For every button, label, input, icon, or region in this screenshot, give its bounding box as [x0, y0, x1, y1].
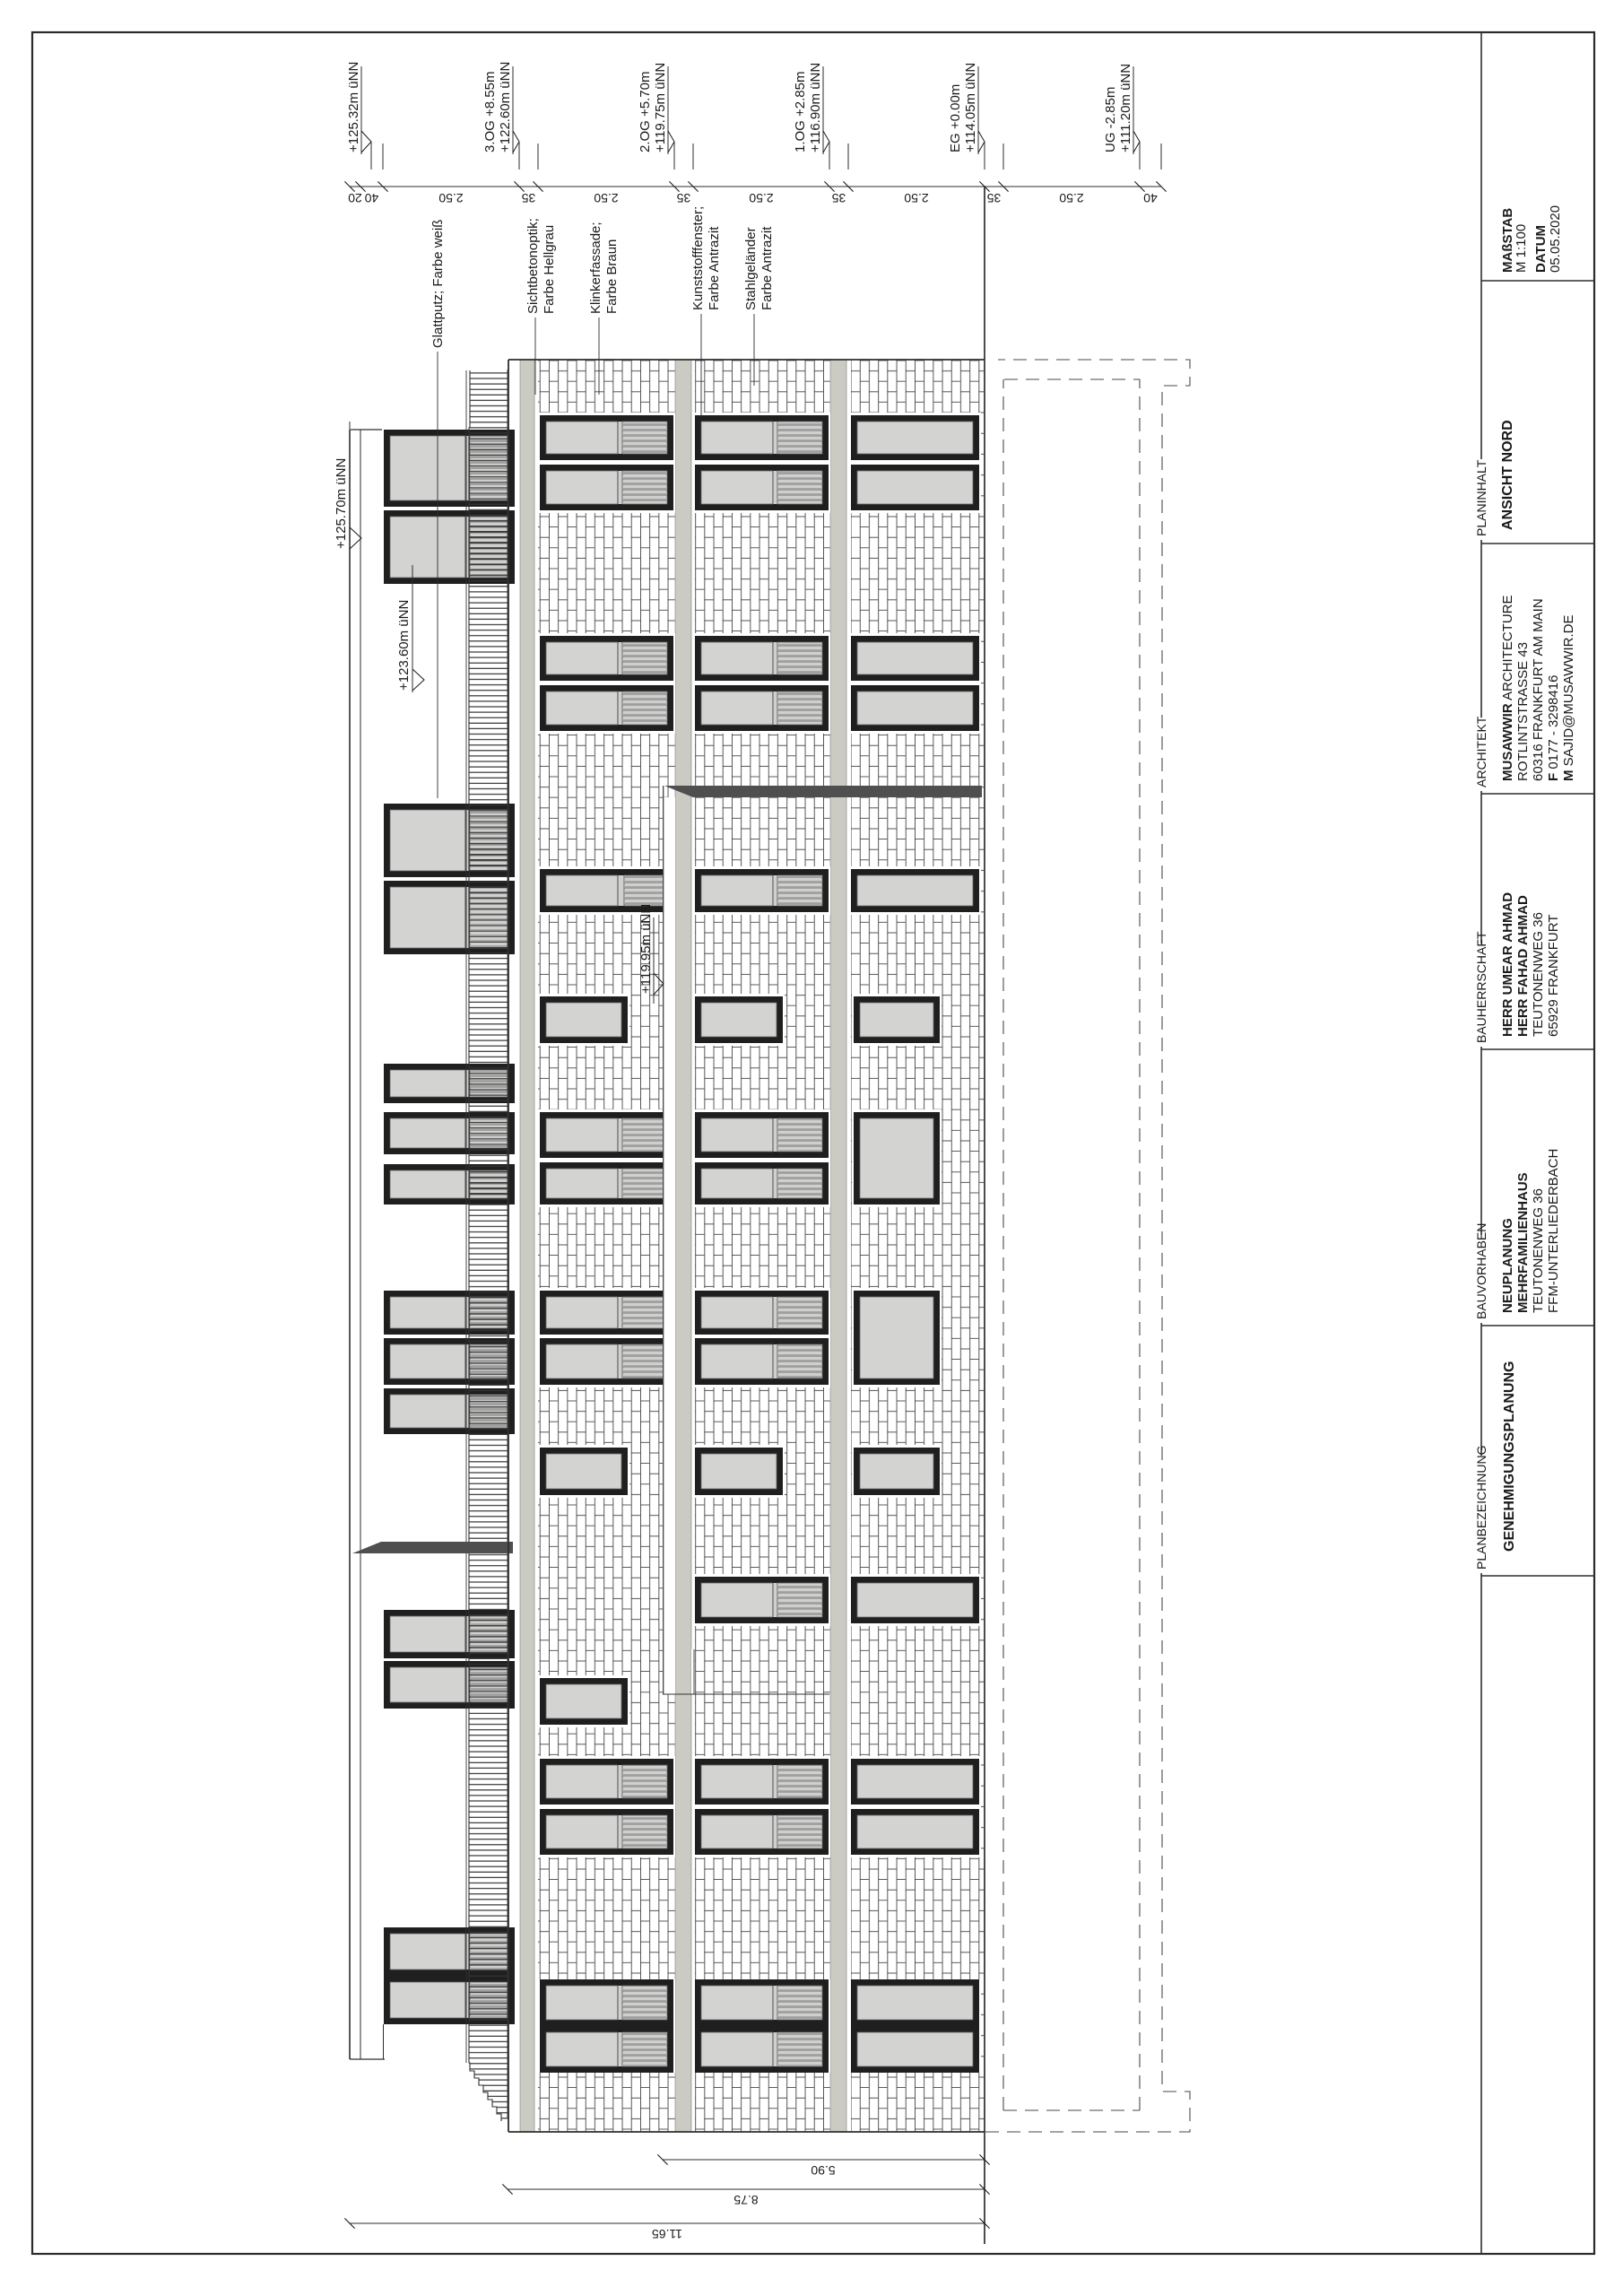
svg-text:HERR FAHAD AHMAD: HERR FAHAD AHMAD [1515, 895, 1531, 1037]
svg-text:Farbe Antrazit: Farbe Antrazit [759, 226, 775, 310]
svg-text:EG +0.00m: EG +0.00m [948, 84, 963, 152]
svg-text:+114.05m üNN: +114.05m üNN [963, 63, 978, 152]
svg-text:DATUM: DATUM [1533, 225, 1549, 273]
svg-text:Farbe Antrazit: Farbe Antrazit [707, 226, 722, 310]
svg-text:MUSAWWIR ARCHITECTURE: MUSAWWIR ARCHITECTURE [1500, 596, 1515, 782]
svg-text:Farbe Braun: Farbe Braun [604, 239, 620, 314]
svg-text:Klinkerfassade;: Klinkerfassade; [588, 222, 603, 314]
svg-text:M SAJID@MUSAWWIR.DE: M SAJID@MUSAWWIR.DE [1561, 614, 1576, 781]
svg-text:40: 40 [365, 191, 379, 205]
svg-text:+125.70m üNN: +125.70m üNN [334, 458, 349, 549]
svg-text:ANSICHT NORD: ANSICHT NORD [1500, 420, 1515, 530]
svg-text:35: 35 [522, 191, 536, 205]
svg-text:TEUTONENWEG 36: TEUTONENWEG 36 [1531, 912, 1546, 1037]
svg-text:+123.60m üNN: +123.60m üNN [396, 600, 412, 691]
svg-text:F 0177 - 3298416: F 0177 - 3298416 [1546, 675, 1561, 781]
svg-text:2.50: 2.50 [438, 191, 463, 205]
svg-text:ROTLINTSTRASSE 43: ROTLINTSTRASSE 43 [1515, 642, 1531, 781]
svg-text:11.65: 11.65 [652, 2227, 682, 2241]
svg-text:8.75: 8.75 [733, 2193, 758, 2207]
svg-text:ARCHITEKT: ARCHITEKT [1474, 716, 1488, 787]
svg-text:HERR UMEAR AHMAD: HERR UMEAR AHMAD [1500, 892, 1515, 1037]
svg-text:M 1:100: M 1:100 [1514, 224, 1529, 273]
svg-text:+116.90m üNN: +116.90m üNN [808, 63, 823, 152]
svg-text:UG -2.85m: UG -2.85m [1103, 87, 1118, 152]
svg-text:BAUHERRSCHAFT: BAUHERRSCHAFT [1474, 931, 1488, 1043]
svg-text:NEUPLANUNG: NEUPLANUNG [1500, 1218, 1515, 1313]
svg-text:BAUVORHABEN: BAUVORHABEN [1474, 1223, 1488, 1319]
svg-text:40: 40 [1143, 191, 1158, 205]
svg-text:PLANBEZEICHNUNG: PLANBEZEICHNUNG [1474, 1446, 1488, 1570]
svg-text:3.OG +8.55m: 3.OG +8.55m [482, 72, 498, 152]
svg-text:2.50: 2.50 [1059, 191, 1083, 205]
svg-text:+119.95m üNN: +119.95m üNN [638, 904, 654, 994]
svg-text:GENEHMIGUNGSPLANUNG: GENEHMIGUNGSPLANUNG [1502, 1361, 1517, 1552]
svg-text:Sichtbetonoptik;: Sichtbetonoptik; [525, 218, 541, 314]
svg-text:2.50: 2.50 [594, 191, 618, 205]
svg-text:2.OG +5.70m: 2.OG +5.70m [638, 72, 653, 152]
svg-text:Kunststofffenster;: Kunststofffenster; [690, 206, 706, 310]
svg-text:+122.60m üNN: +122.60m üNN [498, 62, 513, 152]
svg-text:Stahlgeländer: Stahlgeländer [743, 227, 759, 310]
svg-text:35: 35 [677, 191, 691, 205]
svg-text:05.05.2020: 05.05.2020 [1548, 205, 1563, 273]
svg-text:20: 20 [348, 191, 362, 205]
svg-text:PLANINHALT: PLANINHALT [1474, 459, 1488, 536]
svg-text:Glattputz; Farbe weiß: Glattputz; Farbe weiß [430, 220, 446, 348]
svg-text:35: 35 [832, 191, 846, 205]
svg-text:TEUTONENWEG 36: TEUTONENWEG 36 [1531, 1188, 1546, 1313]
svg-text:+125.32m üNN: +125.32m üNN [346, 62, 361, 152]
svg-text:MEHRFAMILIENHAUS: MEHRFAMILIENHAUS [1515, 1172, 1531, 1313]
svg-text:65929 FRANKFURT: 65929 FRANKFURT [1546, 915, 1561, 1037]
svg-text:35: 35 [987, 191, 1002, 205]
svg-text:2.50: 2.50 [904, 191, 928, 205]
svg-text:FFM-UNTERLIEDERBACH: FFM-UNTERLIEDERBACH [1546, 1149, 1561, 1313]
svg-text:2.50: 2.50 [749, 191, 773, 205]
svg-text:+111.20m üNN: +111.20m üNN [1118, 64, 1133, 152]
svg-text:60316 FRANKFURT AM MAIN: 60316 FRANKFURT AM MAIN [1531, 598, 1546, 781]
svg-text:Farbe Hellgrau: Farbe Hellgrau [542, 225, 557, 314]
svg-text:1.OG +2.85m: 1.OG +2.85m [793, 72, 808, 152]
svg-text:5.90: 5.90 [811, 2163, 835, 2178]
svg-text:+119.75m üNN: +119.75m üNN [653, 63, 668, 152]
